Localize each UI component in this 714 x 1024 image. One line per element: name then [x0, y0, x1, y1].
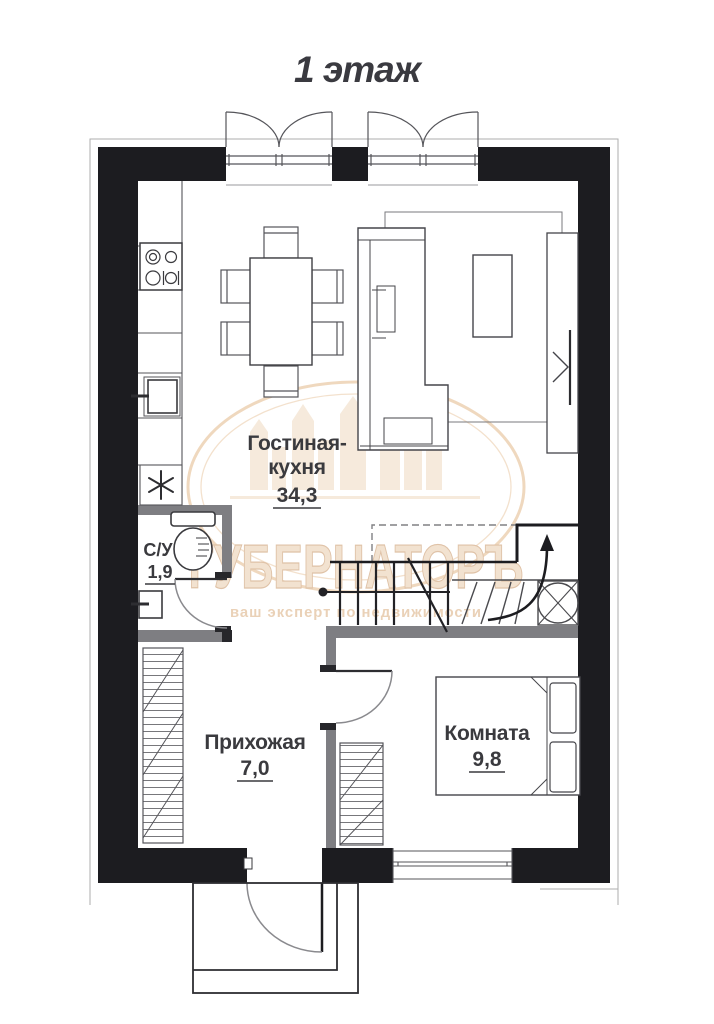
room-name: Прихожая [204, 731, 305, 754]
wall-bottom-left-segment [98, 848, 247, 883]
chair [221, 322, 252, 355]
chair [221, 270, 252, 303]
tv-unit [547, 233, 578, 453]
wall-top-left-segment [98, 147, 226, 181]
chair [312, 322, 343, 355]
wall-top-pier [332, 147, 368, 181]
room-name: С/У [143, 540, 173, 560]
stairs-wall-bottom [326, 626, 578, 638]
room-name: Комната [444, 722, 530, 745]
stove-icon [140, 243, 182, 290]
wall-bottom-mid-segment [322, 848, 393, 883]
refrigerator-icon [140, 465, 182, 505]
wall-bottom-right-segment [512, 848, 610, 883]
pillow [550, 742, 576, 792]
page-title: 1 этаж [294, 49, 423, 90]
bathroom-wall-right [222, 505, 232, 578]
room-name: кухня [268, 456, 326, 479]
window-bottom [393, 848, 512, 883]
coffee-table [473, 255, 512, 337]
chair [264, 366, 298, 397]
hall-wall-top [138, 630, 226, 642]
chair [264, 227, 298, 258]
watermark-tagline-text: ваш эксперт по недвижимости [230, 604, 482, 621]
room-label-bathroom: С/У 1,9 [143, 540, 175, 584]
room-area: 34,3 [277, 484, 318, 507]
wall-right [578, 147, 610, 883]
room-area: 1,9 [147, 562, 172, 582]
wardrobe-bedroom [340, 743, 383, 845]
room-area: 7,0 [240, 757, 269, 780]
pillow [550, 683, 576, 733]
toilet-icon [171, 512, 215, 570]
room-area: 9,8 [472, 748, 502, 771]
room-name: Гостиная- [247, 432, 347, 455]
chair [312, 270, 343, 303]
hall-room-partition-lower [326, 723, 336, 848]
dining-table [250, 258, 312, 365]
wall-left [98, 147, 138, 883]
floorplan-page: 1 этаж ГУБЕРНАТОРЪ ваш эксперт по недвиж… [0, 0, 714, 1024]
floorplan-drawing: 1 этаж ГУБЕРНАТОРЪ ваш эксперт по недвиж… [0, 0, 714, 1024]
wardrobe-hall [143, 648, 183, 843]
